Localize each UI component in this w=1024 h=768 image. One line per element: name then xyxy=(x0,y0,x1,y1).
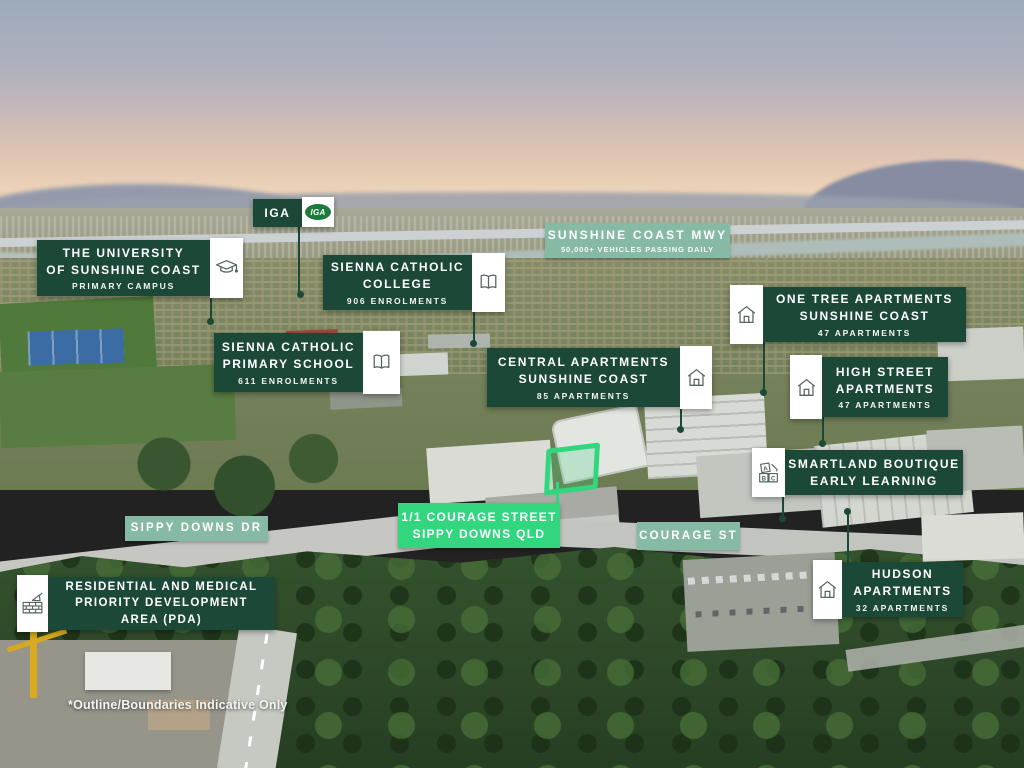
leader-dot-smartland xyxy=(779,515,786,522)
bricks-icon xyxy=(17,575,48,632)
callout-one-tree-box: ONE TREE APARTMENTS SUNSHINE COAST 47 AP… xyxy=(763,287,966,342)
iga-logo-text: IGA xyxy=(310,208,325,217)
leader-line-property xyxy=(556,482,559,503)
mwy-title: SUNSHINE COAST MWY xyxy=(548,227,728,244)
leader-line-sienna-college xyxy=(473,310,475,343)
university-title-line2: OF SUNSHINE COAST xyxy=(46,262,201,279)
disclaimer-text: *Outline/Boundaries Indicative Only xyxy=(68,698,288,712)
bg-tennis-courts xyxy=(27,328,124,365)
property-line2: SIPPY DOWNS QLD xyxy=(413,526,546,543)
sippy-downs-title: SIPPY DOWNS DR xyxy=(131,520,263,536)
central-subtitle: 85 APARTMENTS xyxy=(537,391,630,401)
road-label-courage-st: COURAGE ST xyxy=(637,522,740,550)
callout-sienna-college: SIENNA CATHOLIC COLLEGE 906 ENROLMENTS xyxy=(323,255,505,310)
house-icon xyxy=(813,560,842,619)
leader-line-iga xyxy=(298,225,300,294)
one-tree-line2: SUNSHINE COAST xyxy=(800,308,930,325)
bg-trees xyxy=(118,420,348,530)
smartland-line2: EARLY LEARNING xyxy=(810,473,938,490)
property-outline-highlight xyxy=(544,442,600,495)
callout-sienna-primary: SIENNA CATHOLIC PRIMARY SCHOOL 611 ENROL… xyxy=(214,333,400,392)
high-street-line1: HIGH STREET xyxy=(836,364,934,381)
leader-dot-central xyxy=(677,426,684,433)
callout-iga: IGA IGA xyxy=(253,197,334,227)
one-tree-line1: ONE TREE APARTMENTS xyxy=(776,291,953,308)
leader-dot-university xyxy=(207,318,214,325)
hudson-line2: APARTMENTS xyxy=(853,583,951,600)
sienna-college-subtitle: 906 ENROLMENTS xyxy=(347,296,448,306)
sienna-primary-subtitle: 611 ENROLMENTS xyxy=(238,376,339,386)
callout-iga-title: IGA xyxy=(264,205,290,222)
callout-sienna-college-box: SIENNA CATHOLIC COLLEGE 906 ENROLMENTS xyxy=(323,255,472,310)
callout-one-tree-apartments: ONE TREE APARTMENTS SUNSHINE COAST 47 AP… xyxy=(730,287,966,342)
sienna-college-line2: COLLEGE xyxy=(363,276,432,293)
aerial-map: IGA IGA THE UNIVERSITY OF SUNSHINE COAST… xyxy=(0,0,1024,768)
house-icon xyxy=(680,346,712,409)
hudson-line1: HUDSON xyxy=(872,566,934,583)
callout-high-street-apartments: HIGH STREET APARTMENTS 47 APARTMENTS xyxy=(790,357,948,417)
mwy-subtitle: 50,000+ VEHICLES PASSING DAILY xyxy=(561,245,714,254)
sienna-college-line1: SIENNA CATHOLIC xyxy=(331,259,464,276)
pda-line2: PRIORITY DEVELOPMENT xyxy=(75,595,248,611)
courage-st-title: COURAGE ST xyxy=(639,528,738,544)
callout-pda: RESIDENTIAL AND MEDICAL PRIORITY DEVELOP… xyxy=(17,577,275,630)
sienna-primary-line1: SIENNA CATHOLIC xyxy=(222,339,355,356)
road-label-sunshine-coast-mwy: SUNSHINE COAST MWY 50,000+ VEHICLES PASS… xyxy=(545,223,730,258)
callout-smartland-box: SMARTLAND BOUTIQUE EARLY LEARNING xyxy=(785,450,963,495)
central-line2: SUNSHINE COAST xyxy=(519,371,649,388)
leader-dot-one-tree xyxy=(760,389,767,396)
callout-sienna-primary-box: SIENNA CATHOLIC PRIMARY SCHOOL 611 ENROL… xyxy=(214,333,363,392)
smartland-line1: SMARTLAND BOUTIQUE xyxy=(788,456,959,473)
road-label-sippy-downs-dr: SIPPY DOWNS DR xyxy=(125,516,268,541)
callout-iga-box: IGA xyxy=(253,199,302,227)
callout-pda-box: RESIDENTIAL AND MEDICAL PRIORITY DEVELOP… xyxy=(48,577,275,630)
bg-crane-mast xyxy=(30,626,37,698)
leader-dot-iga xyxy=(297,291,304,298)
hudson-subtitle: 32 APARTMENTS xyxy=(856,603,949,613)
leader-dot-sienna-college xyxy=(470,340,477,347)
leader-dot-high-street xyxy=(819,440,826,447)
high-street-line2: APARTMENTS xyxy=(836,381,934,398)
book-icon xyxy=(472,253,505,312)
abc-blocks-icon xyxy=(752,448,785,497)
callout-university-box: THE UNIVERSITY OF SUNSHINE COAST PRIMARY… xyxy=(37,240,210,296)
university-title-line1: THE UNIVERSITY xyxy=(63,245,185,262)
bg-right-building xyxy=(921,512,1024,562)
bg-shed xyxy=(85,652,171,690)
leader-line-hudson xyxy=(847,511,849,562)
house-icon xyxy=(790,355,822,419)
pda-line3: AREA (PDA) xyxy=(121,612,202,628)
university-subtitle: PRIMARY CAMPUS xyxy=(72,281,175,291)
callout-central-apartments: CENTRAL APARTMENTS SUNSHINE COAST 85 APA… xyxy=(487,348,712,407)
high-street-subtitle: 47 APARTMENTS xyxy=(838,400,931,410)
iga-logo-icon: IGA xyxy=(302,197,334,227)
book-icon xyxy=(363,331,400,394)
central-line1: CENTRAL APARTMENTS xyxy=(498,354,669,371)
callout-central-box: CENTRAL APARTMENTS SUNSHINE COAST 85 APA… xyxy=(487,348,680,407)
callout-hudson-box: HUDSON APARTMENTS 32 APARTMENTS xyxy=(842,562,963,617)
sienna-primary-line2: PRIMARY SCHOOL xyxy=(223,356,355,373)
callout-hudson-apartments: HUDSON APARTMENTS 32 APARTMENTS xyxy=(813,562,963,617)
callout-smartland: SMARTLAND BOUTIQUE EARLY LEARNING xyxy=(752,450,963,495)
property-address-label: 1/1 COURAGE STREET SIPPY DOWNS QLD xyxy=(398,503,560,548)
property-line1: 1/1 COURAGE STREET xyxy=(401,509,556,526)
callout-high-street-box: HIGH STREET APARTMENTS 47 APARTMENTS xyxy=(822,357,948,417)
graduation-cap-icon xyxy=(210,238,243,298)
leader-line-one-tree xyxy=(763,342,765,392)
callout-university: THE UNIVERSITY OF SUNSHINE COAST PRIMARY… xyxy=(37,240,243,296)
pda-line1: RESIDENTIAL AND MEDICAL xyxy=(66,579,258,595)
leader-dot-hudson xyxy=(844,508,851,515)
one-tree-subtitle: 47 APARTMENTS xyxy=(818,328,911,338)
house-icon xyxy=(730,285,763,344)
bg-campus-roof-2 xyxy=(428,333,490,348)
